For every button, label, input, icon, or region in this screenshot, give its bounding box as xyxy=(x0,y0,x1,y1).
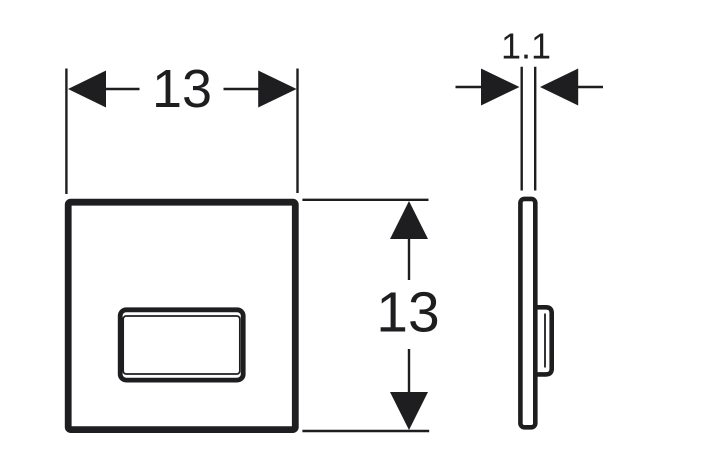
svg-text:13: 13 xyxy=(376,281,439,345)
svg-text:1.1: 1.1 xyxy=(501,25,551,66)
svg-text:13: 13 xyxy=(152,59,212,119)
